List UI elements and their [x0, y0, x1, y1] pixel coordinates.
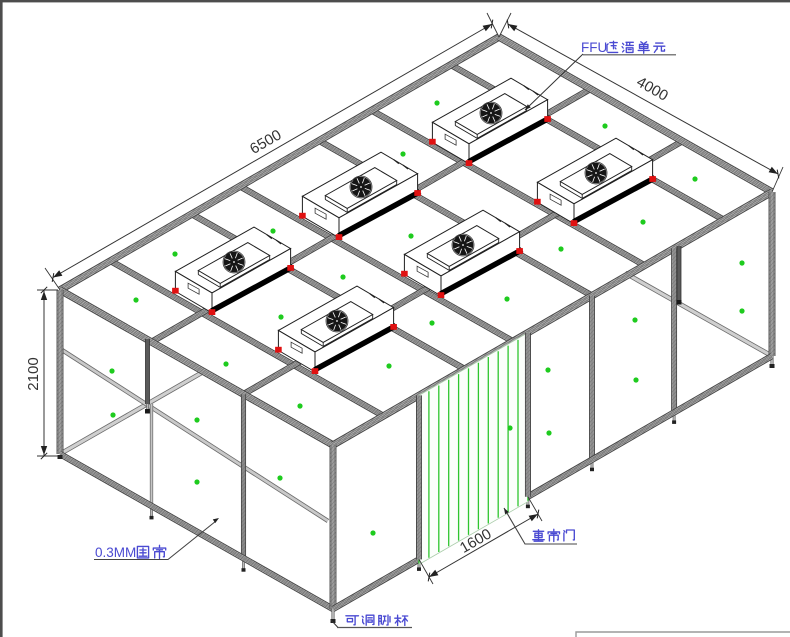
svg-text:FFU: FFU	[581, 40, 607, 55]
svg-text:2100: 2100	[25, 357, 42, 390]
svg-text:0.3MM: 0.3MM	[95, 545, 136, 560]
